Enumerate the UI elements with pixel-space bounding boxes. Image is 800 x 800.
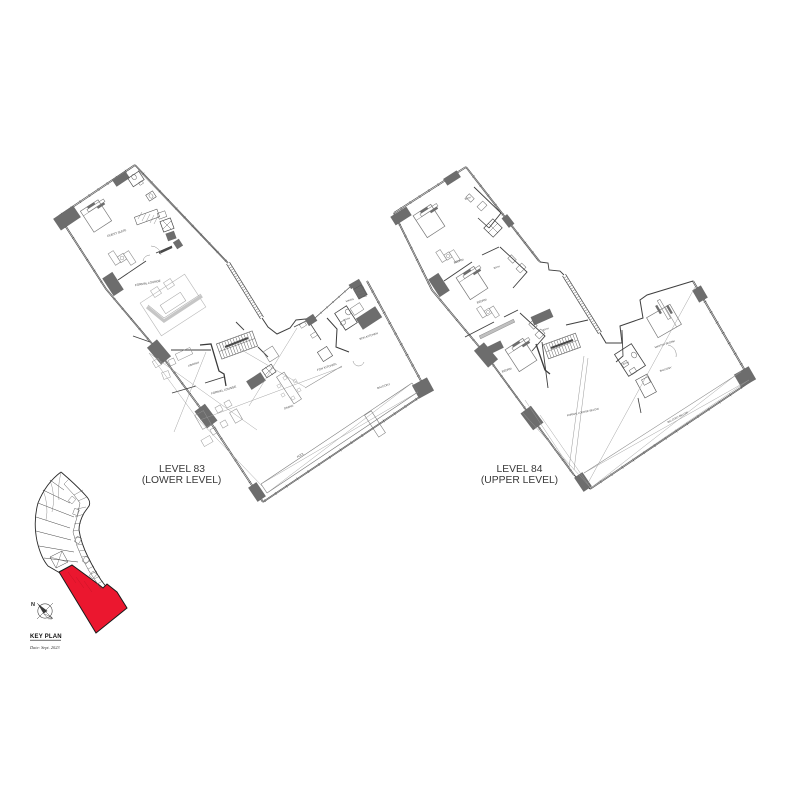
svg-text:LEVEL 83: LEVEL 83 [159,464,205,475]
svg-text:N: N [31,602,35,608]
svg-text:(UPPER LEVEL): (UPPER LEVEL) [481,475,558,486]
svg-text:(LOWER LEVEL): (LOWER LEVEL) [142,475,222,486]
svg-text:LEVEL 84: LEVEL 84 [497,464,543,475]
svg-text:Date: Sept. 2023: Date: Sept. 2023 [29,645,60,650]
svg-text:KEY PLAN: KEY PLAN [30,634,62,640]
